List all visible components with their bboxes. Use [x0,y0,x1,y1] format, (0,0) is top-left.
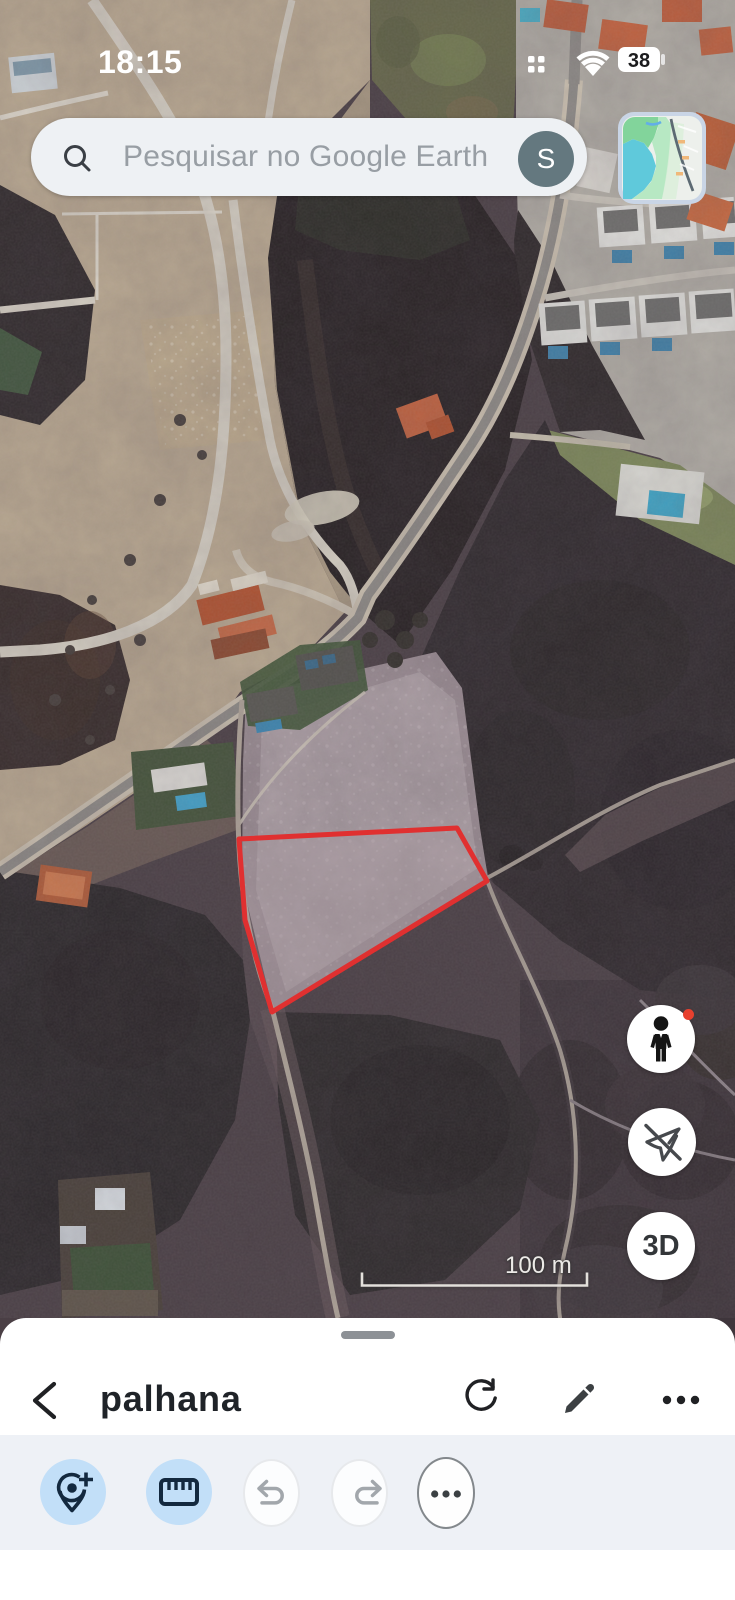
svg-text:38: 38 [628,50,650,72]
